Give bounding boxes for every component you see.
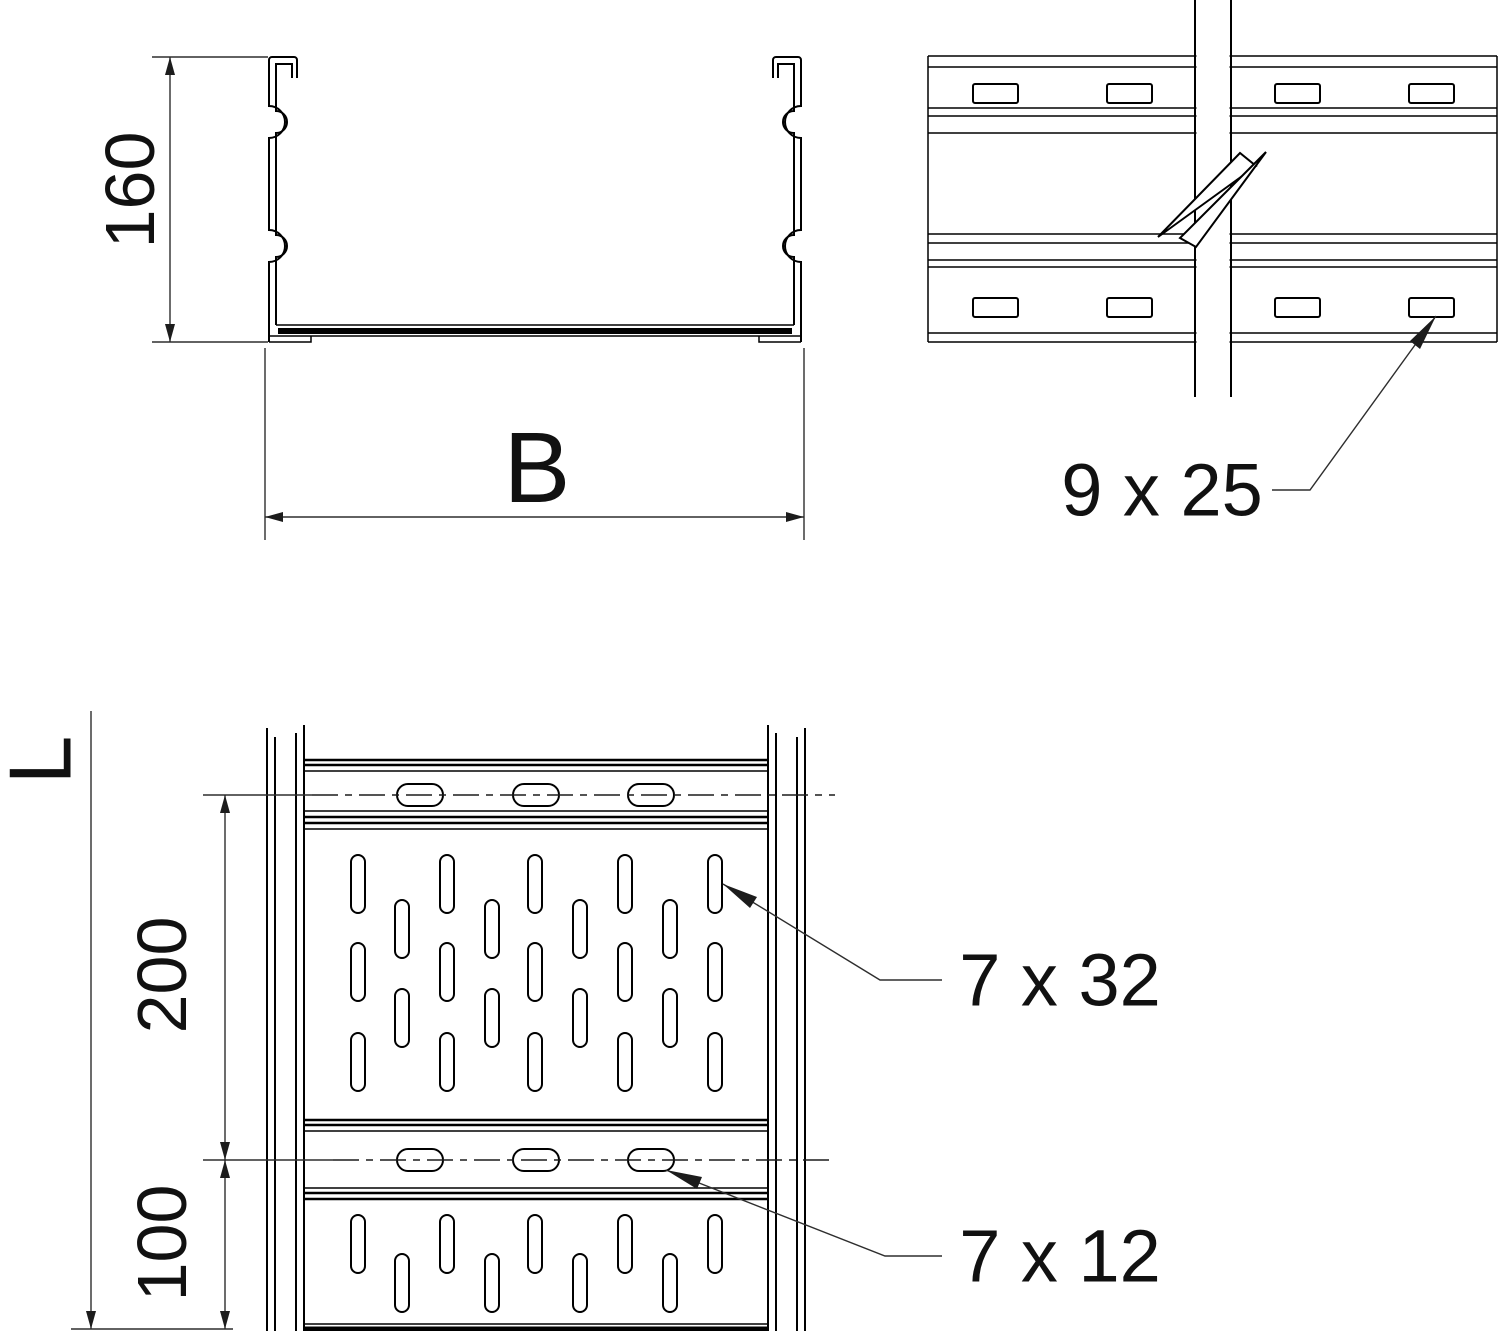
field-slot: [573, 1254, 587, 1312]
left-wall-outer: [269, 57, 297, 342]
leader-arrow: [666, 1170, 702, 1189]
field-slot-label: 7 x 32: [959, 939, 1161, 1022]
field-slot: [663, 900, 677, 958]
arrow-up: [220, 795, 230, 813]
leader-arrow: [723, 884, 757, 908]
technical-drawing-page: 160 B: [0, 0, 1500, 1331]
width-label: B: [504, 412, 571, 524]
field-slot: [618, 943, 632, 1001]
field-slot: [708, 943, 722, 1001]
field-slot-callout: 7 x 32: [723, 884, 1161, 1022]
field-slot: [618, 855, 632, 913]
arrow-right: [786, 512, 804, 522]
cable-tray-drawing: 160 B: [0, 0, 1500, 1331]
field-slot: [573, 989, 587, 1047]
bottom-left-foot: [269, 336, 311, 342]
field-slot: [618, 1033, 632, 1091]
bottom-bead-band: [304, 1327, 768, 1331]
upper-spacing-label: 200: [123, 917, 201, 1034]
field-slot: [528, 943, 542, 1001]
perforation-field: [351, 855, 722, 1312]
field-slot: [440, 1033, 454, 1091]
field-slot: [440, 943, 454, 1001]
right-wall-outer: [773, 57, 801, 342]
field-slot: [440, 855, 454, 913]
field-slot: [708, 1033, 722, 1091]
field-slot: [663, 1254, 677, 1312]
field-slot: [351, 943, 365, 1001]
field-slot: [708, 1215, 722, 1273]
field-slot: [395, 900, 409, 958]
field-slot: [528, 1033, 542, 1091]
rung-slot-label: 7 x 12: [959, 1215, 1161, 1298]
arrow-down: [220, 1311, 230, 1329]
field-slot: [485, 900, 499, 958]
side-slot-label: 9 x 25: [1061, 449, 1263, 532]
arrow-left: [265, 512, 283, 522]
right-wall-inner: [778, 64, 794, 325]
spacing-dimensions: 200 100: [123, 795, 230, 1329]
side-slot: [1409, 298, 1454, 317]
field-slot: [573, 900, 587, 958]
field-slot: [440, 1215, 454, 1273]
left-wall-inner: [276, 64, 292, 325]
field-slot: [351, 1215, 365, 1273]
rung-slot-callout: 7 x 12: [666, 1170, 1161, 1298]
rung-slot-rows: [203, 784, 835, 1171]
cross-section-view: 160 B: [91, 57, 804, 540]
arrow-down: [86, 1311, 96, 1329]
field-slot: [528, 855, 542, 913]
field-slot: [663, 989, 677, 1047]
field-slot: [708, 855, 722, 913]
side-view: 9 x 25: [928, 0, 1497, 532]
field-slot: [351, 855, 365, 913]
arrow-down: [220, 1142, 230, 1160]
field-slot: [485, 989, 499, 1047]
side-slot: [1107, 298, 1152, 317]
field-slot: [395, 1254, 409, 1312]
side-slot-callout: 9 x 25: [1061, 316, 1436, 532]
tray-profile: [269, 57, 801, 342]
field-slot: [618, 1215, 632, 1273]
height-dimension: 160: [91, 57, 268, 342]
side-slot: [1107, 84, 1152, 103]
length-label: L: [0, 736, 90, 785]
field-slot: [485, 1254, 499, 1312]
field-slot: [528, 1215, 542, 1273]
side-slot: [1409, 84, 1454, 103]
height-label: 160: [91, 132, 169, 249]
arrow-down: [165, 324, 175, 342]
width-dimension: B: [265, 348, 804, 540]
arrow-up: [165, 57, 175, 75]
side-slot: [973, 298, 1018, 317]
side-slot: [973, 84, 1018, 103]
break-symbol: [1158, 0, 1266, 397]
arrow-up: [220, 1160, 230, 1178]
field-slot: [351, 1033, 365, 1091]
side-slot: [1275, 298, 1320, 317]
plan-view: L 200 100 7 x 32 7 x 12: [0, 711, 1161, 1331]
side-slot: [1275, 84, 1320, 103]
lower-spacing-label: 100: [123, 1185, 201, 1302]
bottom-right-foot: [759, 336, 801, 342]
field-slot: [395, 989, 409, 1047]
